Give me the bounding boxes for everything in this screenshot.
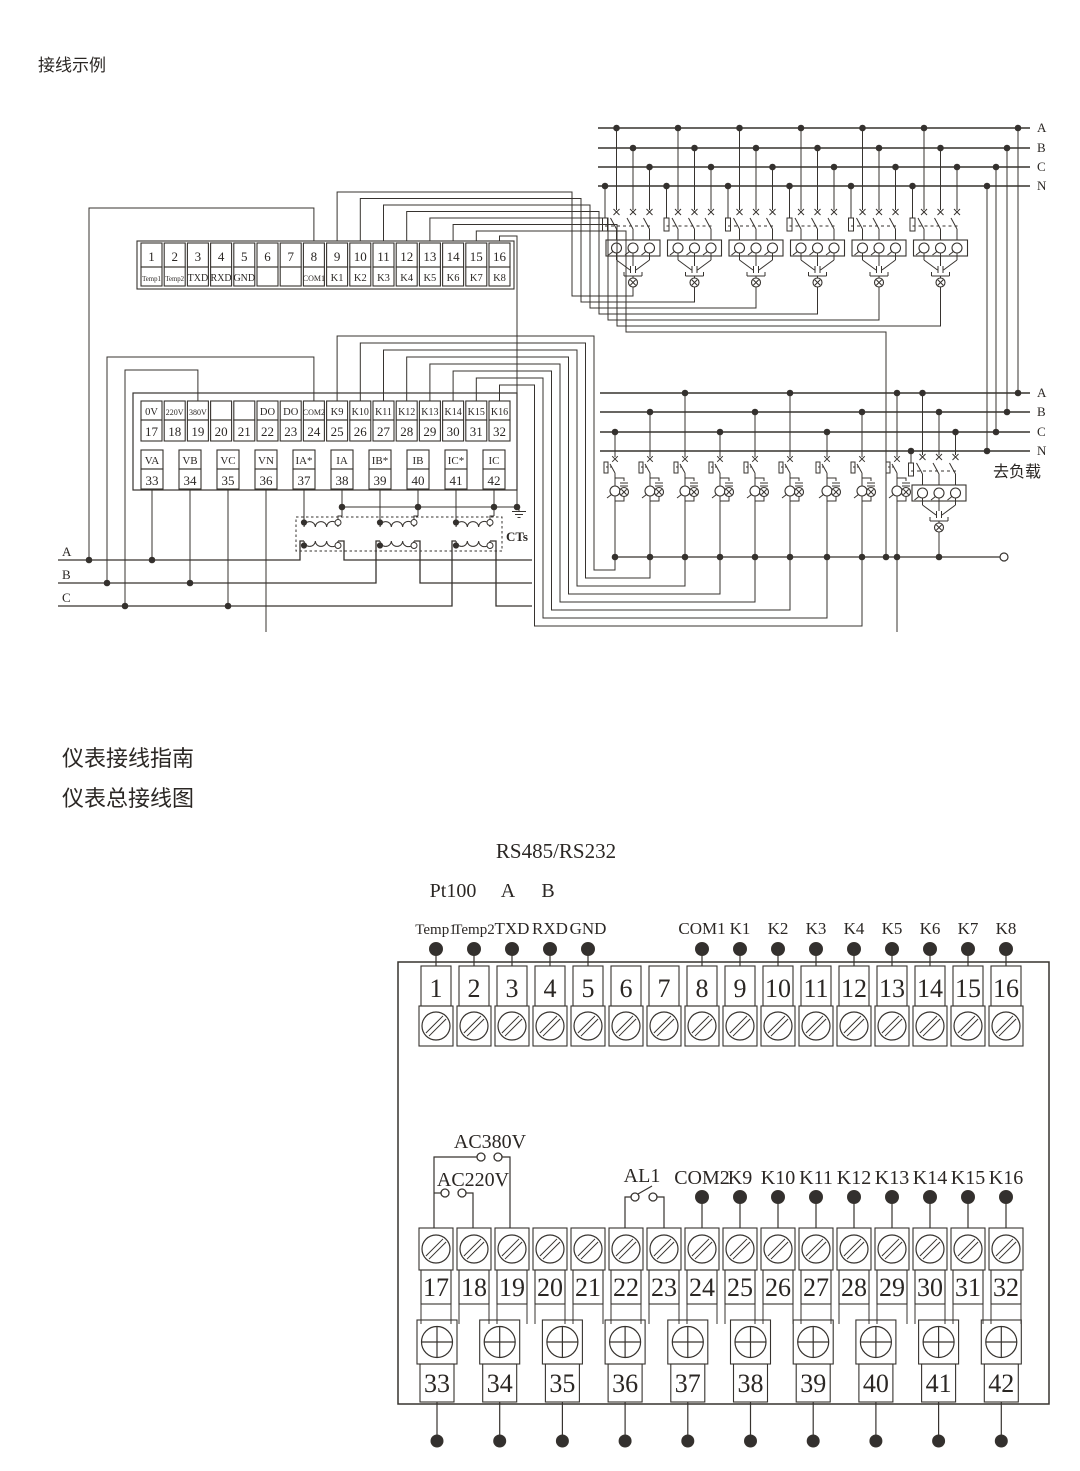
diagram-text: IA* bbox=[295, 455, 312, 467]
diagram-text: 36 bbox=[612, 1369, 638, 1398]
diagram-text: 380V bbox=[189, 408, 207, 417]
diagram-text: 13 bbox=[423, 249, 436, 264]
diagram-text: 8 bbox=[696, 974, 709, 1003]
diagram-text: K11 bbox=[375, 407, 392, 418]
diagram-text: VN bbox=[258, 455, 274, 467]
diagram-text: 37 bbox=[675, 1369, 701, 1398]
diagram-text: 10 bbox=[354, 249, 367, 264]
diagram-text: K11 bbox=[799, 1167, 833, 1189]
diagram-text: K4 bbox=[844, 919, 865, 938]
diagram-text: 220V bbox=[166, 408, 184, 417]
diagram-text: K15 bbox=[951, 1167, 985, 1189]
diagram-text: 39 bbox=[800, 1369, 826, 1398]
diagram-text: VC bbox=[220, 455, 235, 467]
diagram-text: 10 bbox=[765, 974, 791, 1003]
wiring-manual-page: 接线示例 1Temp12Temp23TXD4RXD5GND678COM19K11… bbox=[0, 0, 1080, 1471]
diagram-text: Temp1 bbox=[415, 922, 456, 938]
diagram-text: VA bbox=[145, 455, 160, 467]
diagram-text: 16 bbox=[993, 974, 1019, 1003]
diagram-text: 3 bbox=[195, 249, 202, 264]
diagram-text: 3 bbox=[506, 974, 519, 1003]
diagram-text: A bbox=[62, 544, 72, 559]
diagram-text: 29 bbox=[879, 1273, 905, 1302]
ac220v-label: AC220V bbox=[437, 1169, 510, 1191]
diagram-text: 28 bbox=[841, 1273, 867, 1302]
diagram-text: K13 bbox=[421, 407, 438, 418]
diagram-text: 32 bbox=[493, 424, 506, 439]
diagram-text: 24 bbox=[307, 424, 321, 439]
rs485-label: RS485/RS232 bbox=[496, 839, 616, 863]
diagram-text: 5 bbox=[241, 249, 248, 264]
diagram-text: 32 bbox=[993, 1273, 1019, 1302]
diagram-text: DO bbox=[283, 407, 299, 418]
diagram-text: 19 bbox=[499, 1273, 525, 1302]
diagram-text: GND bbox=[233, 273, 255, 284]
diagram-text: 39 bbox=[374, 473, 387, 488]
diagram-text: K12 bbox=[398, 407, 415, 418]
diagram-text: IB* bbox=[372, 455, 389, 467]
diagram-text: IC* bbox=[448, 455, 465, 467]
diagram-text: TXD bbox=[188, 273, 209, 284]
diagram-text: 30 bbox=[447, 424, 460, 439]
diagram-text: 23 bbox=[651, 1273, 677, 1302]
wiring-example-drawing: 1Temp12Temp23TXD4RXD5GND678COM19K110K211… bbox=[58, 120, 1047, 632]
pt100-label: Pt100 bbox=[430, 880, 477, 902]
diagram-text: K16 bbox=[989, 1167, 1023, 1189]
diagram-text: RXD bbox=[532, 919, 568, 938]
diagram-text: 20 bbox=[537, 1273, 563, 1302]
guide-title: 仪表接线指南 bbox=[62, 746, 194, 771]
diagram-text: A bbox=[1037, 120, 1047, 135]
diagram-text: 4 bbox=[218, 249, 225, 264]
diagram-text: K5 bbox=[423, 273, 436, 284]
top-diagram-title: 接线示例 bbox=[38, 56, 106, 75]
diagram-text: 21 bbox=[575, 1273, 601, 1302]
diagram-text: IC bbox=[489, 455, 500, 467]
diagram-text: 28 bbox=[400, 424, 413, 439]
diagram-text: 14 bbox=[447, 249, 461, 264]
diagram-text: K6 bbox=[447, 273, 460, 284]
diagram-text: 19 bbox=[191, 424, 204, 439]
diagram-text: GND bbox=[570, 919, 607, 938]
cts-label: CTs bbox=[506, 529, 528, 544]
diagram-text: K3 bbox=[377, 273, 390, 284]
diagram-text: K14 bbox=[913, 1167, 947, 1189]
diagram-text: 9 bbox=[734, 974, 747, 1003]
diagram-text: K10 bbox=[352, 407, 369, 418]
diagram-text: 1 bbox=[430, 974, 443, 1003]
diagram-text: 34 bbox=[487, 1369, 513, 1398]
diagram-text: 21 bbox=[238, 424, 251, 439]
diagram-text: K1 bbox=[331, 273, 344, 284]
diagram-text: K13 bbox=[875, 1167, 909, 1189]
diagram-text: K5 bbox=[882, 919, 903, 938]
diagram-text: 20 bbox=[215, 424, 228, 439]
diagram-text: 33 bbox=[424, 1369, 450, 1398]
diagram-text: 41 bbox=[450, 473, 463, 488]
diagram-text: K7 bbox=[958, 919, 979, 938]
diagram-text: K3 bbox=[806, 919, 827, 938]
diagram-text: 40 bbox=[863, 1369, 889, 1398]
diagram-text: 31 bbox=[470, 424, 483, 439]
rs485-a-label: A bbox=[501, 880, 516, 902]
diagram-text: 42 bbox=[988, 1369, 1014, 1398]
overall-diagram-title: 仪表总接线图 bbox=[62, 786, 194, 811]
diagram-text: 14 bbox=[917, 974, 943, 1003]
diagram-text: 6 bbox=[620, 974, 633, 1003]
diagram-text: K2 bbox=[768, 919, 789, 938]
diagram-text: 16 bbox=[493, 249, 507, 264]
top-wiring-diagram: 接线示例 1Temp12Temp23TXD4RXD5GND678COM19K11… bbox=[38, 56, 1047, 632]
diagram-text: 18 bbox=[168, 424, 181, 439]
diagram-text: 42 bbox=[488, 473, 501, 488]
diagram-text: N bbox=[1037, 443, 1047, 458]
diagram-text: 12 bbox=[400, 249, 413, 264]
diagram-text: 35 bbox=[549, 1369, 575, 1398]
diagram-text: K8 bbox=[996, 919, 1017, 938]
bottom-wiring-diagram: 仪表接线指南 仪表总接线图 RS485/RS232 Pt100 A B AC38… bbox=[62, 746, 1049, 1447]
diagram-text: 17 bbox=[145, 424, 159, 439]
diagram-text: 4 bbox=[544, 974, 557, 1003]
diagram-text: C bbox=[1037, 159, 1046, 174]
diagram-text: 5 bbox=[582, 974, 595, 1003]
diagram-text: TXD bbox=[495, 919, 530, 938]
diagram-text: COM1 bbox=[678, 919, 725, 938]
diagram-text: K2 bbox=[354, 273, 367, 284]
diagram-text: 33 bbox=[146, 473, 159, 488]
diagram-text: K12 bbox=[837, 1167, 871, 1189]
diagram-text: IA bbox=[336, 455, 348, 467]
diagram-text: K7 bbox=[470, 273, 483, 284]
diagram-text: K16 bbox=[491, 407, 508, 418]
diagram-text: 24 bbox=[689, 1273, 715, 1302]
diagram-text: K10 bbox=[761, 1167, 795, 1189]
diagram-text: K6 bbox=[920, 919, 941, 938]
diagram-text: 35 bbox=[222, 473, 235, 488]
diagram-text: COM2 bbox=[674, 1167, 730, 1189]
to-load-label: 去负载 bbox=[993, 463, 1041, 481]
diagram-text: A bbox=[1037, 385, 1047, 400]
diagram-text: B bbox=[1037, 404, 1046, 419]
diagram-text: 26 bbox=[765, 1273, 791, 1302]
ac380v-label: AC380V bbox=[454, 1131, 527, 1153]
diagram-text: 38 bbox=[336, 473, 349, 488]
diagram-text: B bbox=[1037, 140, 1046, 155]
diagram-text: 12 bbox=[841, 974, 867, 1003]
diagram-text: 36 bbox=[260, 473, 274, 488]
diagram-text: C bbox=[62, 590, 71, 605]
diagram-text: C bbox=[1037, 424, 1046, 439]
al1-label: AL1 bbox=[624, 1165, 661, 1187]
diagram-text: 31 bbox=[955, 1273, 981, 1302]
diagram-text: Temp2 bbox=[453, 922, 494, 938]
diagram-text: K14 bbox=[444, 407, 461, 418]
diagram-text: Temp1 bbox=[142, 276, 161, 283]
diagram-text: 29 bbox=[423, 424, 436, 439]
diagram-text: 26 bbox=[354, 424, 368, 439]
diagram-text: 17 bbox=[423, 1273, 449, 1302]
diagram-text: 7 bbox=[658, 974, 671, 1003]
diagram-text: 37 bbox=[298, 473, 312, 488]
diagram-text: 11 bbox=[377, 249, 390, 264]
diagram-text: K9 bbox=[728, 1167, 752, 1189]
diagram-text: 38 bbox=[738, 1369, 764, 1398]
diagram-text: 6 bbox=[264, 249, 271, 264]
diagram-text: 11 bbox=[803, 974, 828, 1003]
diagram-text: N bbox=[1037, 178, 1047, 193]
diagram-text: 15 bbox=[470, 249, 483, 264]
diagram-text: 18 bbox=[461, 1273, 487, 1302]
diagram-text: 15 bbox=[955, 974, 981, 1003]
diagram-text: 7 bbox=[287, 249, 294, 264]
diagram-text: B bbox=[62, 567, 71, 582]
diagram-text: 22 bbox=[613, 1273, 639, 1302]
diagram-text: COM1 bbox=[303, 274, 325, 283]
diagram-text: 22 bbox=[261, 424, 274, 439]
diagram-text: 13 bbox=[879, 974, 905, 1003]
rs485-b-label: B bbox=[541, 880, 554, 902]
diagram-text: RXD bbox=[211, 273, 232, 284]
diagram-text: 25 bbox=[727, 1273, 753, 1302]
diagram-text: 8 bbox=[311, 249, 318, 264]
diagram-text: VB bbox=[182, 455, 197, 467]
diagram-text: K4 bbox=[400, 273, 414, 284]
diagram-text: K9 bbox=[331, 407, 344, 418]
diagram-text: DO bbox=[260, 407, 276, 418]
diagram-text: 27 bbox=[803, 1273, 829, 1302]
diagram-text: IB bbox=[413, 455, 424, 467]
diagram-text: 2 bbox=[171, 249, 178, 264]
diagram-text: COM2 bbox=[303, 408, 325, 417]
diagram-text: 2 bbox=[468, 974, 481, 1003]
diagram-text: 23 bbox=[284, 424, 297, 439]
diagram-text: 0V bbox=[145, 407, 158, 418]
diagram-text: K1 bbox=[730, 919, 751, 938]
diagram-text: 41 bbox=[926, 1369, 952, 1398]
diagram-text: 9 bbox=[334, 249, 341, 264]
diagram-text: 40 bbox=[412, 473, 425, 488]
diagram-text: 1 bbox=[148, 249, 155, 264]
diagram-text: K8 bbox=[493, 273, 506, 284]
diagram-text: 34 bbox=[184, 473, 198, 488]
diagram-text: K15 bbox=[468, 407, 485, 418]
diagram-text: 30 bbox=[917, 1273, 943, 1302]
diagram-text: 27 bbox=[377, 424, 391, 439]
diagram-text: 25 bbox=[331, 424, 344, 439]
diagram-text: Temp2 bbox=[165, 276, 184, 283]
